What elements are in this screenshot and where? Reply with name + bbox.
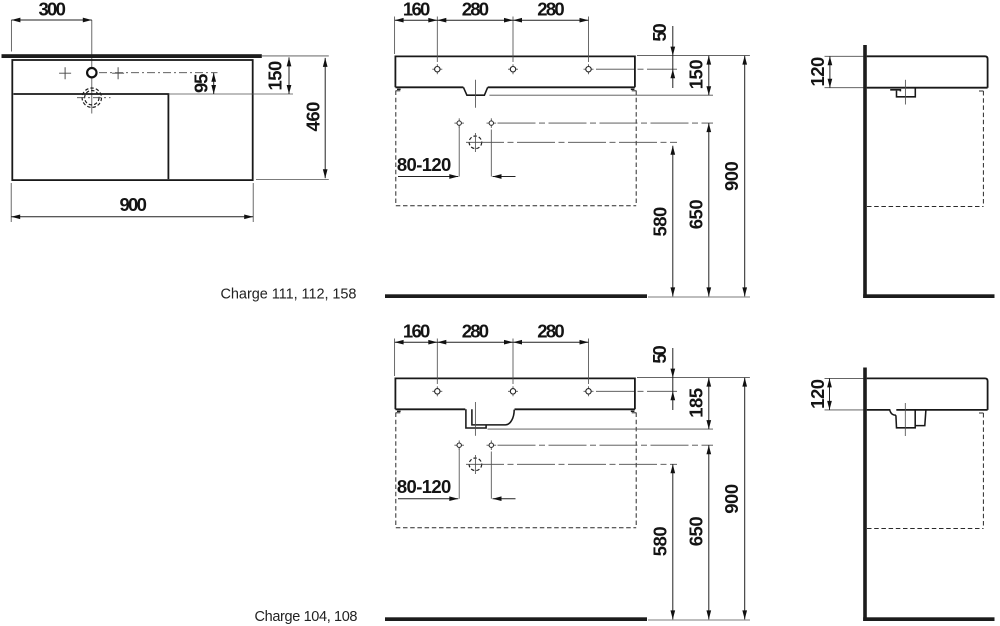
svg-text:Charge 104, 108: Charge 104, 108	[255, 609, 358, 625]
svg-text:280: 280	[462, 0, 489, 20]
svg-text:120: 120	[807, 379, 828, 409]
svg-text:80-120: 80-120	[397, 154, 451, 175]
svg-text:160: 160	[403, 321, 430, 342]
svg-text:280: 280	[537, 321, 564, 342]
svg-text:900: 900	[120, 194, 147, 215]
svg-text:580: 580	[649, 207, 670, 237]
svg-text:300: 300	[39, 0, 66, 20]
svg-text:460: 460	[303, 102, 324, 132]
svg-text:185: 185	[686, 388, 707, 418]
svg-text:650: 650	[685, 200, 706, 230]
svg-text:50: 50	[649, 345, 670, 363]
svg-text:80-120: 80-120	[397, 476, 451, 497]
svg-text:280: 280	[537, 0, 564, 20]
svg-text:150: 150	[264, 61, 285, 91]
svg-text:650: 650	[685, 517, 706, 547]
svg-text:580: 580	[649, 527, 670, 557]
svg-text:280: 280	[462, 321, 489, 342]
svg-text:900: 900	[721, 484, 742, 514]
svg-text:95: 95	[191, 74, 212, 93]
svg-text:150: 150	[686, 60, 707, 90]
svg-text:Charge 111, 112, 158: Charge 111, 112, 158	[221, 286, 357, 302]
svg-text:120: 120	[807, 57, 828, 87]
svg-text:50: 50	[649, 23, 670, 41]
svg-text:160: 160	[403, 0, 430, 20]
svg-text:900: 900	[721, 161, 742, 191]
